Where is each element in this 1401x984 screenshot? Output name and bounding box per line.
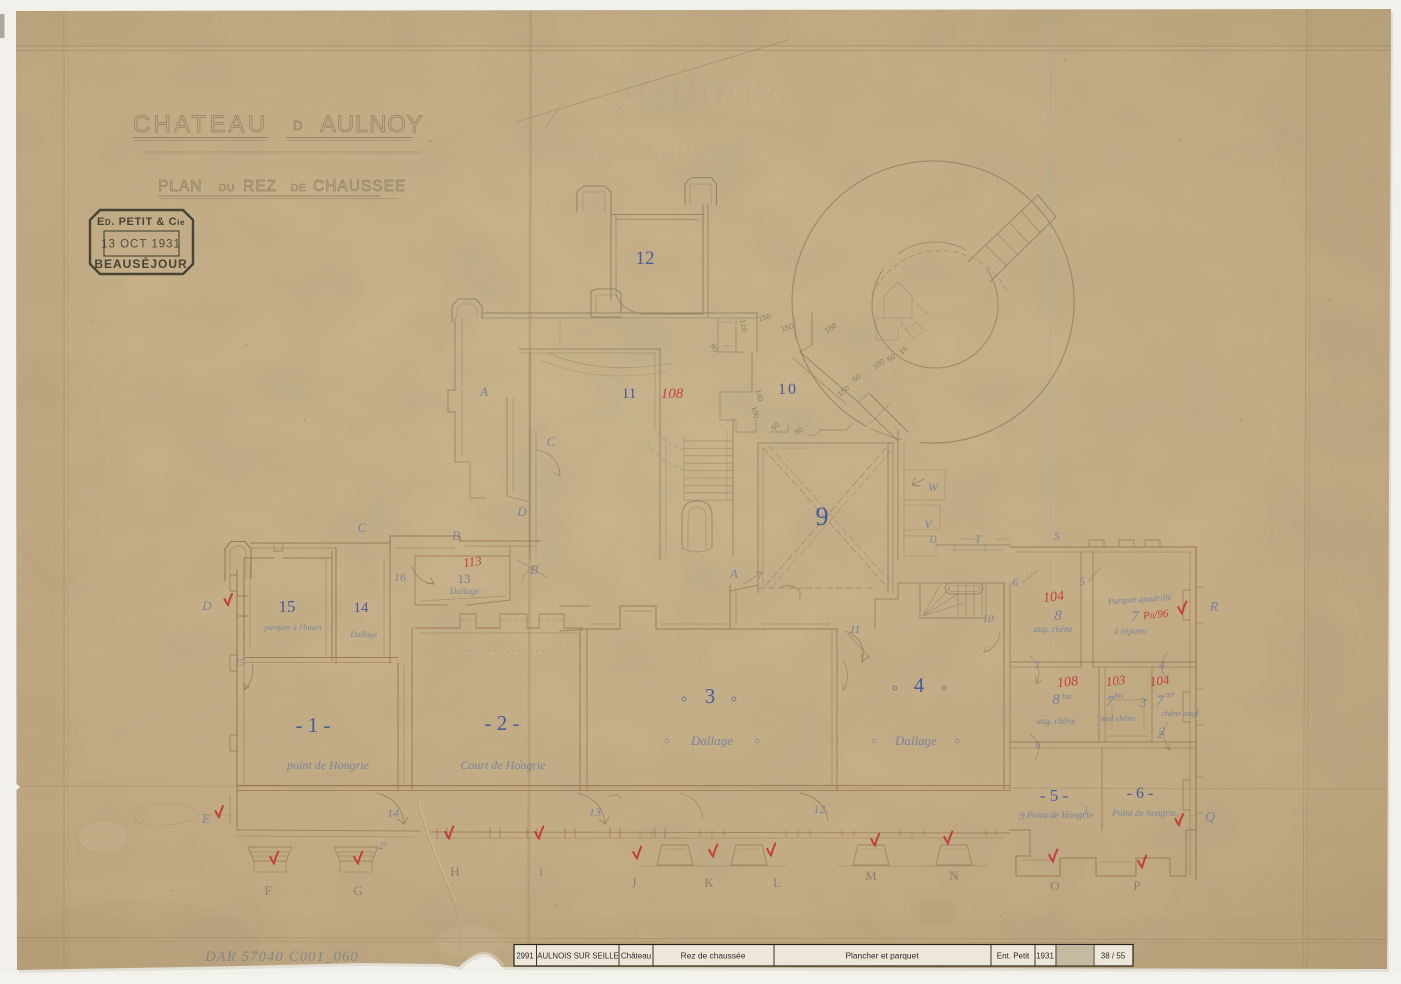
- svg-text:AULNOY: AULNOY: [320, 111, 424, 138]
- svg-text:Rez de Chaussee: Rez de Chaussee: [538, 132, 741, 169]
- svg-text:14: 14: [354, 600, 370, 616]
- svg-text:ED. PETIT & Cie: ED. PETIT & Cie: [97, 216, 185, 228]
- svg-text:6: 6: [1012, 575, 1018, 589]
- svg-text:PLAN: PLAN: [158, 178, 203, 195]
- svg-text:3: 3: [1139, 695, 1147, 710]
- svg-text:K: K: [704, 875, 714, 890]
- svg-text:DAR 57040 C001_060: DAR 57040 C001_060: [204, 949, 359, 965]
- svg-text:Dallage: Dallage: [894, 733, 937, 748]
- svg-text:A: A: [479, 384, 488, 399]
- svg-text:11: 11: [622, 386, 636, 402]
- svg-text:Plancher et parquet: Plancher et parquet: [845, 951, 919, 961]
- svg-text:108: 108: [1056, 674, 1078, 691]
- svg-text:aug. chêne: aug. chêne: [1037, 716, 1076, 726]
- svg-text:2: 2: [1157, 727, 1163, 741]
- svg-text:12: 12: [636, 248, 655, 269]
- svg-text:- 2 -: - 2 -: [485, 711, 520, 735]
- svg-text:38 / 55: 38 / 55: [1101, 952, 1126, 961]
- svg-text:Q: Q: [1205, 810, 1215, 825]
- svg-text:2°: 2°: [379, 841, 388, 851]
- svg-text:point de Hongrie: point de Hongrie: [286, 758, 370, 772]
- svg-text:à réparer: à réparer: [1114, 626, 1148, 636]
- svg-text:103: 103: [1105, 672, 1126, 689]
- svg-text:S: S: [1054, 529, 1060, 543]
- svg-text:- 5 -: - 5 -: [1040, 786, 1069, 805]
- svg-text:Dallage: Dallage: [690, 733, 733, 748]
- svg-text:CHATEAU: CHATEAU: [133, 111, 268, 138]
- svg-text:DU: DU: [219, 183, 235, 194]
- svg-text:BEAUSÉJOUR: BEAUSÉJOUR: [94, 256, 187, 271]
- svg-text:16: 16: [394, 570, 406, 584]
- svg-text:Rez de chaussée: Rez de chaussée: [681, 951, 746, 961]
- svg-text:REZ: REZ: [243, 178, 277, 195]
- svg-text:104: 104: [1149, 672, 1170, 689]
- svg-text:G: G: [353, 883, 362, 898]
- svg-text:10: 10: [778, 381, 798, 398]
- svg-text:8: 8: [1054, 608, 1062, 624]
- svg-text:- 1 -: - 1 -: [296, 713, 331, 737]
- svg-text:W: W: [928, 480, 939, 494]
- svg-text:9: 9: [816, 502, 829, 531]
- svg-text:1931: 1931: [1036, 952, 1054, 961]
- svg-text:1: 1: [1084, 806, 1089, 817]
- svg-text:C: C: [547, 434, 556, 449]
- svg-text:mal chêne: mal chêne: [1101, 713, 1136, 723]
- svg-text:14: 14: [387, 806, 399, 820]
- svg-text:H: H: [450, 864, 459, 879]
- svg-text:Ent. Petit: Ent. Petit: [997, 952, 1030, 961]
- svg-text:F: F: [264, 883, 271, 898]
- svg-text:108: 108: [661, 386, 684, 402]
- svg-text:E: E: [201, 811, 210, 826]
- svg-text:bis: bis: [1062, 692, 1071, 701]
- svg-text:Aulnay: Aulnay: [611, 52, 783, 126]
- svg-text:D: D: [293, 118, 302, 133]
- svg-text:D: D: [516, 504, 527, 519]
- svg-text:10: 10: [983, 613, 995, 625]
- svg-text:13 OCT 1931: 13 OCT 1931: [101, 239, 181, 251]
- svg-text:8: 8: [1052, 692, 1060, 708]
- svg-text:R: R: [1209, 600, 1219, 615]
- svg-text:bis: bis: [1114, 691, 1123, 700]
- svg-text:9: 9: [1019, 810, 1025, 822]
- svg-text:5: 5: [1079, 574, 1085, 588]
- svg-text:ter: ter: [1166, 690, 1176, 699]
- svg-text:C: C: [358, 520, 367, 535]
- svg-text:113: 113: [462, 553, 483, 571]
- svg-text:3: 3: [705, 684, 716, 708]
- svg-text:104: 104: [1042, 589, 1064, 606]
- svg-text:Dallage -: Dallage -: [449, 586, 484, 596]
- svg-text:2991: 2991: [516, 952, 533, 961]
- svg-text:13: 13: [458, 571, 471, 586]
- svg-text:parquet à l'huart: parquet à l'huart: [263, 622, 322, 632]
- svg-text:M: M: [865, 868, 877, 883]
- svg-text:Court de Hongrie: Court de Hongrie: [460, 758, 546, 772]
- svg-text:CHAUSSEE: CHAUSSEE: [313, 178, 406, 195]
- svg-text:aug. chêne: aug. chêne: [1034, 624, 1073, 634]
- svg-text:- 6 -: - 6 -: [1127, 785, 1154, 802]
- svg-text:DE: DE: [291, 183, 307, 194]
- svg-text:AULNOIS SUR SEILLE: AULNOIS SUR SEILLE: [537, 952, 618, 961]
- svg-text:U: U: [929, 535, 937, 546]
- svg-text:A: A: [729, 566, 738, 581]
- svg-text:15: 15: [279, 597, 296, 616]
- svg-text:L: L: [773, 875, 781, 890]
- svg-text:Château: Château: [621, 952, 651, 961]
- svg-text:4: 4: [914, 673, 925, 697]
- svg-text:N: N: [949, 868, 959, 883]
- svg-text:chêne angl.: chêne angl.: [1161, 708, 1200, 718]
- svg-text:Dallage: Dallage: [349, 629, 378, 639]
- svg-text:J: J: [631, 875, 636, 890]
- svg-text:O: O: [1050, 878, 1059, 893]
- svg-text:Point de hongrie: Point de hongrie: [1111, 809, 1176, 819]
- svg-text:i: i: [539, 864, 543, 879]
- svg-text:P: P: [1133, 878, 1140, 893]
- svg-text:D: D: [201, 598, 212, 613]
